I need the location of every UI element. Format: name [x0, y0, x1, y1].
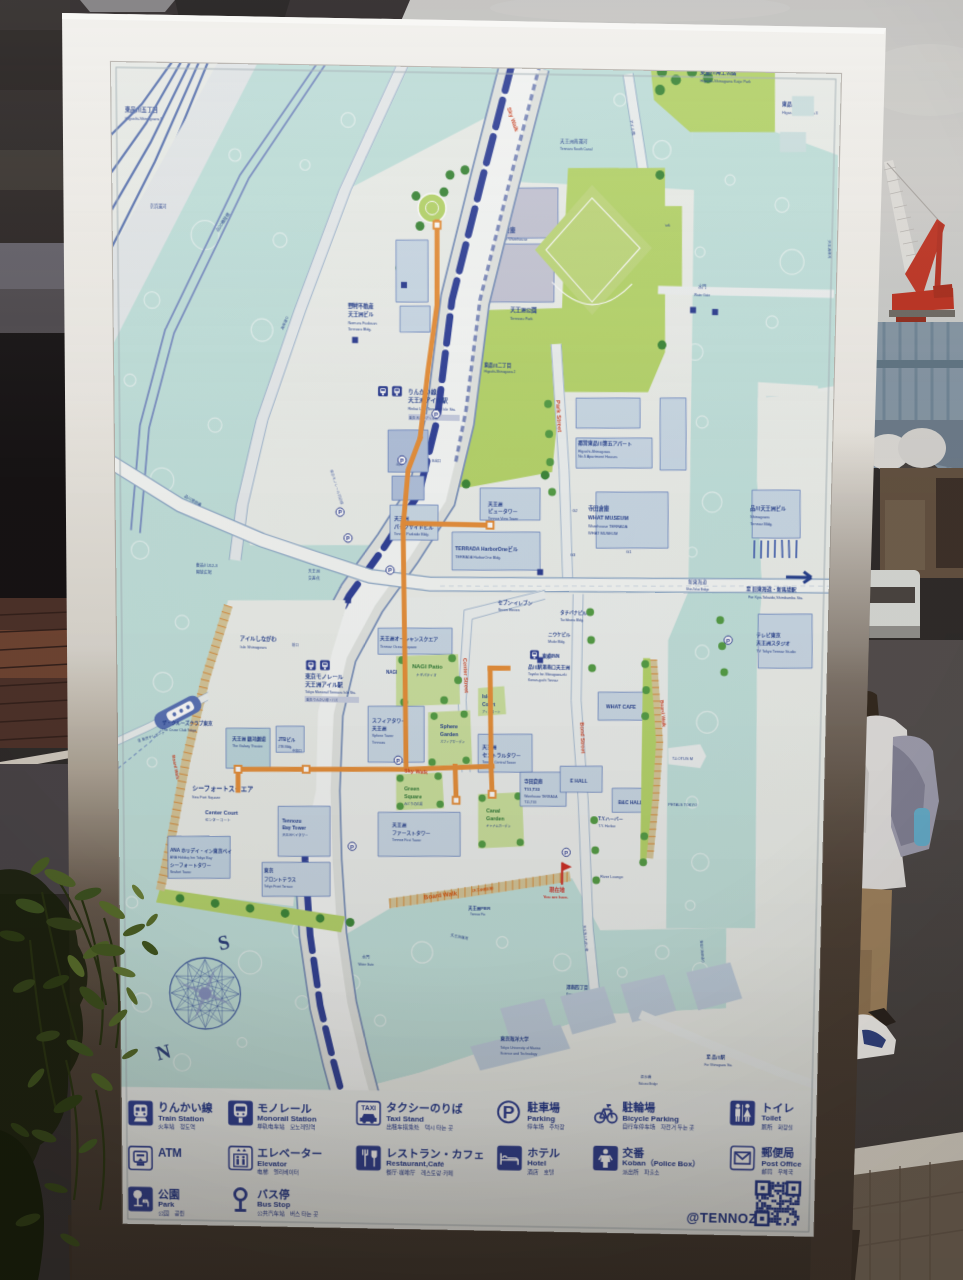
svg-text:ATM: ATM — [158, 1146, 182, 1159]
svg-text:天王洲: 天王洲 — [372, 725, 387, 732]
svg-text:B出口: B出口 — [432, 458, 441, 463]
svg-text:Warehouse TERRADA: Warehouse TERRADA — [588, 523, 628, 529]
svg-text:Green: Green — [404, 786, 420, 792]
svg-text:Science and Technology: Science and Technology — [500, 1052, 537, 1056]
svg-text:TV Tokyo Tennoz Studio: TV Tokyo Tennoz Studio — [756, 648, 796, 654]
svg-text:WHAT CAFE: WHAT CAFE — [606, 704, 636, 710]
svg-text:Taxi Stand: Taxi Stand — [386, 1114, 424, 1123]
svg-text:フロントテラス: フロントテラス — [264, 877, 296, 883]
svg-text:Water Gate: Water Gate — [694, 293, 710, 297]
svg-text:P: P — [726, 638, 730, 645]
svg-text:センターコート: センターコート — [205, 818, 231, 823]
svg-text:Sphere Tower: Sphere Tower — [372, 734, 394, 738]
svg-text:P: P — [346, 536, 350, 543]
svg-text:River Lounge: River Lounge — [600, 874, 624, 879]
svg-text:Higashi-Shinagawa 2: Higashi-Shinagawa 2 — [484, 370, 516, 375]
svg-text:交差点: 交差点 — [308, 575, 320, 581]
svg-text:乗換 りんかい線・バス: 乗換 りんかい線・バス — [306, 697, 338, 702]
svg-text:Sphere: Sphere — [440, 724, 458, 730]
svg-text:Toyoko Inn Shinagawa-eki: Toyoko Inn Shinagawa-eki — [528, 672, 567, 677]
svg-text:Tokyo University of Marine: Tokyo University of Marine — [500, 1046, 540, 1050]
svg-text:G2: G2 — [572, 508, 578, 513]
svg-text:天王洲: 天王洲 — [392, 821, 406, 828]
svg-text:Shinagawa: Shinagawa — [750, 514, 770, 519]
svg-text:Rinkai Line Tennozu Isle Sta.: Rinkai Line Tennozu Isle Sta. — [408, 406, 456, 412]
svg-text:You are here.: You are here. — [543, 895, 568, 900]
svg-text:Toilet: Toilet — [761, 1114, 781, 1123]
svg-text:Sea Fort Square: Sea Fort Square — [192, 794, 221, 799]
svg-text:Tennozu South Canal: Tennozu South Canal — [560, 147, 592, 152]
svg-text:Post Office: Post Office — [761, 1159, 802, 1168]
svg-text:P: P — [338, 510, 342, 517]
svg-text:Garden: Garden — [440, 732, 459, 738]
svg-text:ANA Holiday Inn Tokyo Bay: ANA Holiday Inn Tokyo Bay — [170, 855, 212, 860]
svg-text:トイレ: トイレ — [761, 1102, 794, 1115]
svg-text:Miuke Bldg.: Miuke Bldg. — [548, 640, 565, 644]
svg-text:Tennozu Park: Tennozu Park — [510, 316, 533, 321]
svg-text:Bay Tower: Bay Tower — [282, 825, 306, 831]
svg-text:中和口: 中和口 — [292, 748, 302, 753]
svg-text:Monorail Station: Monorail Station — [257, 1114, 316, 1123]
svg-text:Higashi-Shinagawa Kaijo Park: Higashi-Shinagawa Kaijo Park — [700, 78, 751, 84]
svg-text:東品川J12-3: 東品川J12-3 — [196, 562, 218, 568]
svg-text:G3: G3 — [570, 552, 576, 557]
svg-text:G1: G1 — [626, 549, 632, 554]
svg-text:Tennoz Pie: Tennoz Pie — [470, 912, 485, 916]
svg-text:Square: Square — [404, 794, 422, 800]
svg-text:T11,T33: T11,T33 — [524, 800, 536, 804]
svg-text:Seven Eleven: Seven Eleven — [498, 608, 520, 612]
svg-text:T.Y. Harbor: T.Y. Harbor — [598, 824, 616, 828]
svg-text:ホテル: ホテル — [527, 1147, 560, 1160]
svg-text:ナギパティオ: ナギパティオ — [416, 672, 437, 677]
svg-text:T-LOTUS M: T-LOTUS M — [672, 756, 693, 761]
svg-text:公園: 公園 — [158, 1188, 180, 1201]
svg-text:Garden: Garden — [486, 817, 505, 823]
svg-text:スフィアガーデン: スフィアガーデン — [440, 739, 465, 744]
svg-text:E HALL: E HALL — [570, 778, 588, 784]
svg-text:Tennoz Parkside Bldg.: Tennoz Parkside Bldg. — [394, 532, 429, 537]
svg-text:Seafort Tower: Seafort Tower — [170, 870, 192, 874]
svg-text:Warehouse TERRADA: Warehouse TERRADA — [524, 794, 558, 798]
svg-text:交番: 交番 — [622, 1146, 644, 1159]
svg-text:WHAT MUSEUM: WHAT MUSEUM — [588, 530, 618, 535]
svg-text:Tennoz First Tower: Tennoz First Tower — [392, 838, 422, 842]
svg-text:Train Station: Train Station — [158, 1114, 204, 1123]
svg-text:P: P — [388, 568, 392, 575]
svg-text:P: P — [434, 411, 438, 418]
svg-text:天王洲: 天王洲 — [308, 569, 320, 574]
svg-text:楽水橋: 楽水橋 — [640, 1075, 651, 1080]
svg-text:P: P — [400, 458, 404, 465]
svg-text:Center Court: Center Court — [205, 810, 238, 816]
svg-text:Tennozu: Tennozu — [282, 819, 301, 825]
svg-text:Parking: Parking — [527, 1114, 555, 1123]
svg-text:Park: Park — [158, 1200, 175, 1209]
svg-text:駐輪場: 駐輪場 — [622, 1101, 655, 1115]
svg-text:Nomura Fudosan: Nomura Fudosan — [348, 320, 377, 325]
svg-text:りんかい線: りんかい線 — [158, 1101, 213, 1115]
svg-text:Shin-Tokai Bridge: Shin-Tokai Bridge — [686, 587, 709, 591]
svg-text:Higashi-Shinagawa: Higashi-Shinagawa — [578, 448, 611, 454]
svg-text:For Kyu-Tokaido,Shimbamba Sta.: For Kyu-Tokaido,Shimbamba Sta. — [748, 594, 803, 600]
svg-text:TERRADA HarborOne Bldg.: TERRADA HarborOne Bldg. — [455, 554, 501, 560]
svg-text:A出口: A出口 — [352, 302, 362, 307]
svg-text:現在地: 現在地 — [549, 886, 565, 894]
svg-text:For Shinagawa Sta.: For Shinagawa Sta. — [704, 1063, 732, 1067]
svg-text:P: P — [350, 844, 354, 851]
svg-text:キャナルガーデン: キャナルガーデン — [486, 823, 511, 828]
svg-text:Konan-guchi Tennoz: Konan-guchi Tennoz — [528, 678, 558, 682]
svg-text:No.5 Apartment Houses: No.5 Apartment Houses — [578, 454, 618, 460]
svg-text:Canal: Canal — [486, 808, 501, 814]
svg-text:B&C HALL: B&C HALL — [618, 800, 643, 806]
svg-text:バス停: バス停 — [257, 1187, 290, 1200]
svg-text:Koban（Police Box）: Koban（Police Box） — [622, 1158, 700, 1169]
svg-text:天王洲: 天王洲 — [488, 500, 503, 507]
svg-text:PETALS TOKYO: PETALS TOKYO — [668, 802, 697, 807]
svg-text:P: P — [396, 758, 400, 765]
svg-text:前口: 前口 — [292, 642, 298, 647]
svg-text:P: P — [502, 1103, 514, 1124]
svg-text:TAXI: TAXI — [361, 1105, 376, 1113]
svg-text:WHAT MUSEUM: WHAT MUSEUM — [588, 515, 629, 522]
svg-text:T11,T33: T11,T33 — [524, 786, 540, 791]
svg-text:Rakusui Bridge: Rakusui Bridge — [638, 1082, 658, 1086]
svg-text:天王洲ベイタワー: 天王洲ベイタワー — [282, 832, 308, 837]
svg-text:T.Y.ハーバー: T.Y.ハーバー — [598, 816, 623, 821]
svg-text:Tennoz Bldg.: Tennoz Bldg. — [750, 521, 773, 526]
svg-text:駐車場: 駐車場 — [527, 1101, 560, 1115]
svg-text:JTB Bldg.: JTB Bldg. — [278, 745, 292, 749]
svg-text:Hotel: Hotel — [527, 1159, 546, 1168]
svg-text:Elevator: Elevator — [257, 1159, 288, 1168]
svg-text:Tennoz Ocean Square: Tennoz Ocean Square — [380, 644, 417, 649]
svg-text:Bicycle Parking: Bicycle Parking — [622, 1114, 679, 1123]
svg-text:P: P — [564, 850, 568, 857]
svg-text:Tennozu Bldg.: Tennozu Bldg. — [348, 326, 372, 331]
svg-text:Bus Stop: Bus Stop — [257, 1200, 290, 1209]
svg-text:水門: 水門 — [362, 954, 370, 960]
svg-text:@TENNOZ: @TENNOZ — [686, 1211, 757, 1227]
svg-text:Tennozu: Tennozu — [372, 740, 385, 744]
svg-text:Tachibana Bldg.: Tachibana Bldg. — [560, 618, 584, 622]
svg-text:NAGI Patio: NAGI Patio — [412, 663, 443, 670]
svg-text:NAGI: NAGI — [386, 670, 397, 675]
svg-text:Water Gate: Water Gate — [358, 963, 374, 967]
svg-text:郵便局: 郵便局 — [761, 1146, 794, 1160]
svg-text:The Cruse Club Tokyo: The Cruse Club Tokyo — [162, 728, 196, 732]
svg-text:Tokyo Front Terrace: Tokyo Front Terrace — [264, 885, 293, 889]
svg-text:The Galaxy Theatre: The Galaxy Theatre — [232, 744, 263, 748]
svg-text:Restaurant,Café: Restaurant,Café — [386, 1159, 444, 1168]
svg-text:Isle Shinagawa: Isle Shinagawa — [240, 644, 267, 649]
svg-text:みどりの広場: みどりの広場 — [404, 801, 423, 806]
svg-text:開放広場: 開放広場 — [196, 569, 212, 575]
